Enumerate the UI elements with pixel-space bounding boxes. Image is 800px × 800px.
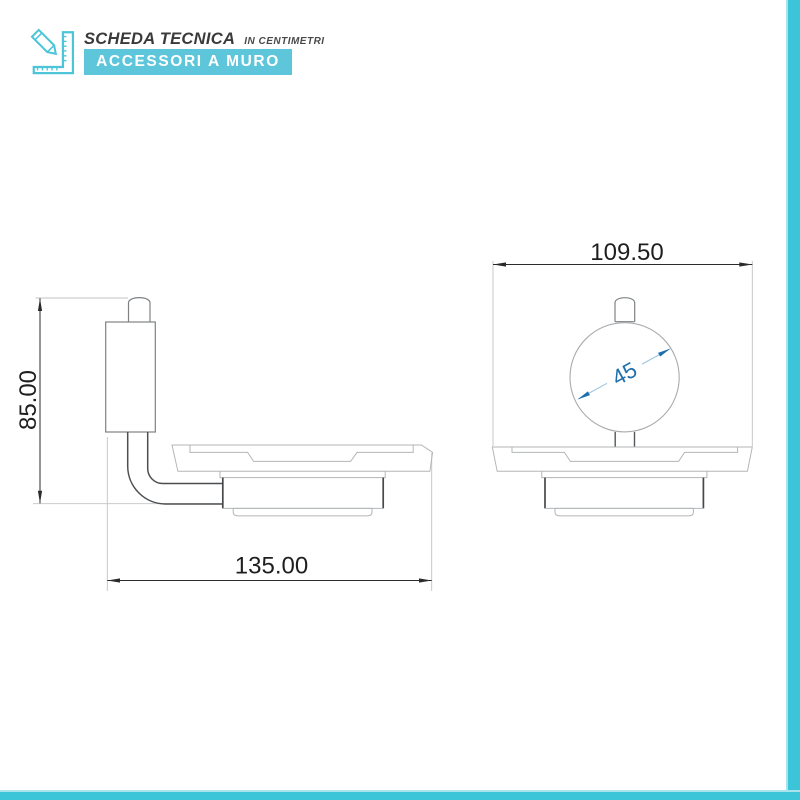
cup-lip <box>233 508 372 516</box>
dish-outline <box>492 447 752 471</box>
technical-drawing: 85.00 135.00 109.50 <box>0 0 800 800</box>
brand-stripe-bottom <box>0 790 800 800</box>
cup-flange <box>542 471 707 477</box>
dim-label-height: 85.00 <box>15 370 42 430</box>
arrowhead-left <box>107 578 120 582</box>
dim-label-width: 135.00 <box>235 553 308 580</box>
arrowhead-right <box>739 262 752 266</box>
arrowhead-up <box>38 298 42 311</box>
arrowhead-blue <box>658 349 670 357</box>
spec-sheet-page: { "header": { "icon": "pencil-ruler-icon… <box>0 0 800 800</box>
dim-label-diameter: 45 <box>608 357 641 391</box>
side-view: 85.00 135.00 <box>15 298 433 591</box>
wall-plate-side <box>106 322 156 432</box>
soap-dish-side <box>172 445 433 471</box>
arrowhead-down <box>38 491 42 504</box>
dimension-109: 109.50 <box>493 239 752 267</box>
dish-inner-line <box>190 445 413 461</box>
dimension-85: 85.00 <box>15 298 42 503</box>
cup-flange <box>220 471 385 477</box>
tube-arm-side <box>128 432 223 504</box>
arrowhead-blue <box>578 391 590 399</box>
cup-lip <box>555 508 693 516</box>
front-view: 109.50 45 <box>492 239 752 516</box>
dimension-45: 45 <box>578 349 671 400</box>
soap-dish-front <box>492 447 752 471</box>
tube-outer <box>128 432 223 504</box>
tube-inner <box>148 432 223 484</box>
brand-stripe-right <box>786 0 800 800</box>
dish-inner-line <box>512 447 738 461</box>
dimension-135: 135.00 <box>107 553 431 583</box>
arrowhead-left <box>493 262 506 266</box>
dish-outline <box>172 445 433 471</box>
mount-cap-side <box>129 298 151 322</box>
mount-cap-front <box>615 298 635 322</box>
front-extension-lines <box>493 261 752 446</box>
cup-front <box>542 471 707 516</box>
cup-side <box>220 471 385 516</box>
arrowhead-right <box>419 578 432 582</box>
dim-label-width: 109.50 <box>590 239 663 266</box>
